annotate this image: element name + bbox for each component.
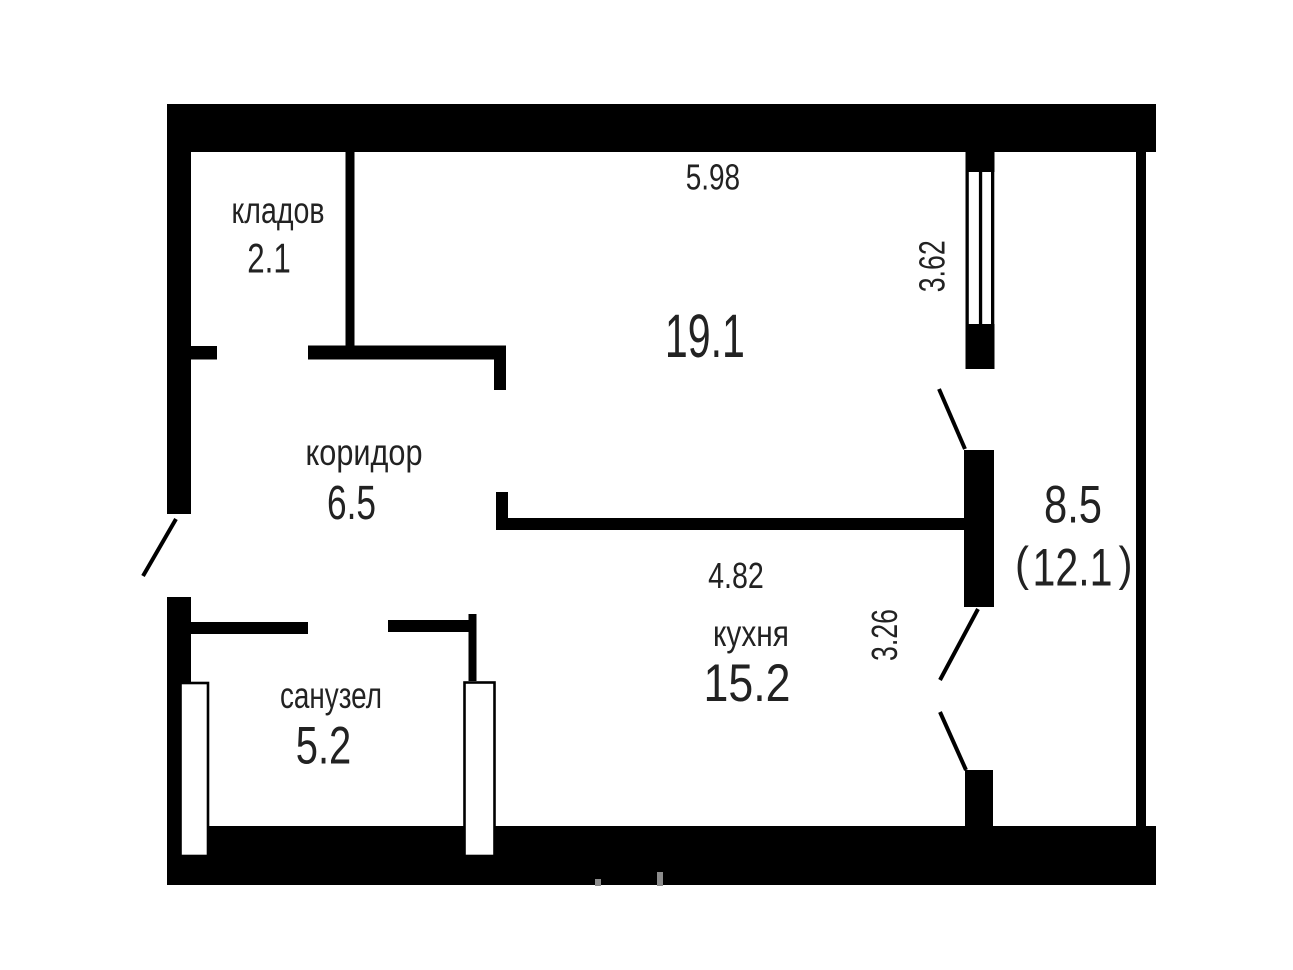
svg-text:4.82: 4.82 [708,555,764,596]
svg-text:кладов: кладов [232,190,325,231]
svg-text:5.98: 5.98 [686,157,740,198]
svg-text:8.5: 8.5 [1044,476,1102,535]
svg-text:6.5: 6.5 [327,477,376,530]
svg-text:3.26: 3.26 [864,609,905,661]
svg-text:12.1: 12.1 [1033,539,1113,598]
svg-text:): ) [1119,537,1133,590]
svg-text:санузел: санузел [280,675,382,716]
svg-text:кухня: кухня [713,613,789,654]
svg-text:коридор: коридор [306,432,423,473]
svg-text:(: ( [1015,537,1029,590]
svg-text:15.2: 15.2 [704,654,791,713]
svg-text:5.2: 5.2 [296,717,352,776]
svg-text:2.1: 2.1 [247,235,291,282]
svg-text:3.62: 3.62 [912,240,953,292]
svg-text:19.1: 19.1 [665,302,745,370]
